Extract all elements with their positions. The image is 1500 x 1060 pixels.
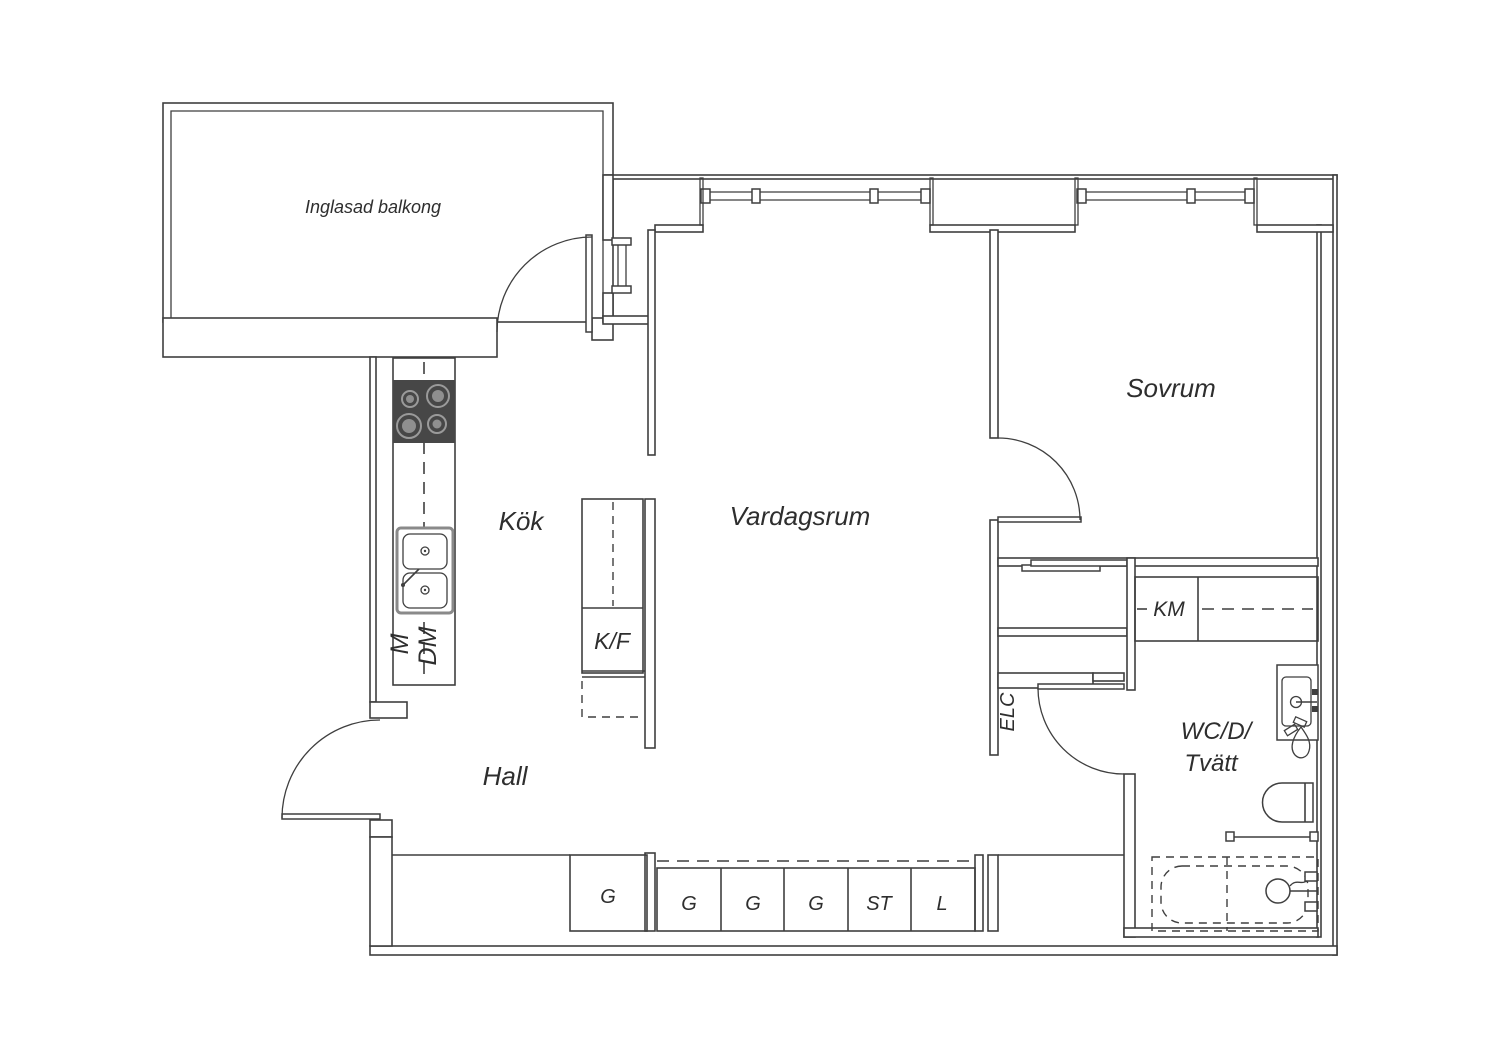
balcony bbox=[163, 103, 613, 357]
fridge-freezer-cabinet bbox=[582, 499, 655, 748]
wardrobes bbox=[570, 855, 975, 931]
towel-rail bbox=[1226, 832, 1318, 841]
label-wardrobe-cell: G bbox=[745, 893, 761, 915]
label-fridge-freezer: K/F bbox=[594, 628, 632, 654]
label-bedroom: Sovrum bbox=[1126, 373, 1216, 403]
label-wardrobe-single: G bbox=[600, 886, 616, 908]
label-wardrobe-cell: G bbox=[681, 893, 697, 915]
label-kitchen: Kök bbox=[499, 506, 546, 536]
label-hall: Hall bbox=[483, 761, 529, 791]
window-mullion bbox=[870, 189, 878, 203]
label-washing-machine: KM bbox=[1153, 598, 1185, 621]
kitchen-sink bbox=[397, 528, 453, 613]
toilet bbox=[1263, 783, 1314, 822]
label-living-room: Vardagsrum bbox=[730, 501, 871, 531]
stove bbox=[393, 380, 455, 443]
label-dishwasher: DM bbox=[414, 626, 442, 665]
window-mullion bbox=[1187, 189, 1195, 203]
label-microwave: M bbox=[386, 633, 414, 654]
interior-walls bbox=[392, 230, 1318, 937]
label-wardrobe-cell: L bbox=[936, 893, 947, 915]
label-wardrobe-cell: ST bbox=[866, 893, 893, 915]
label-electrical-cabinet: ELC bbox=[997, 692, 1019, 731]
window-mullion bbox=[752, 189, 760, 203]
bathtub bbox=[1152, 857, 1318, 931]
label-balcony: Inglasad balkong bbox=[305, 197, 441, 217]
balcony-door bbox=[497, 235, 592, 332]
floor-plan-page: Inglasad balkong Kök Vardagsrum Sovrum H… bbox=[0, 0, 1500, 1060]
floor-plan-drawing: Inglasad balkong Kök Vardagsrum Sovrum H… bbox=[0, 0, 1500, 1060]
bedroom-door bbox=[998, 438, 1081, 522]
kitchen-fixtures bbox=[393, 358, 655, 748]
window-cap bbox=[701, 189, 710, 203]
label-bathroom-1: WC/D/ bbox=[1181, 718, 1254, 745]
label-bathroom-2: Tvätt bbox=[1184, 750, 1239, 777]
window-cap bbox=[612, 286, 631, 293]
windows bbox=[612, 178, 1257, 293]
window-cap bbox=[612, 238, 631, 245]
interior-top-walls bbox=[603, 175, 1333, 455]
label-wardrobe-cell: G bbox=[808, 893, 824, 915]
bathroom-door bbox=[1038, 684, 1124, 774]
entrance-door bbox=[282, 720, 380, 819]
window-cap bbox=[1245, 189, 1254, 203]
window-cap bbox=[921, 189, 930, 203]
